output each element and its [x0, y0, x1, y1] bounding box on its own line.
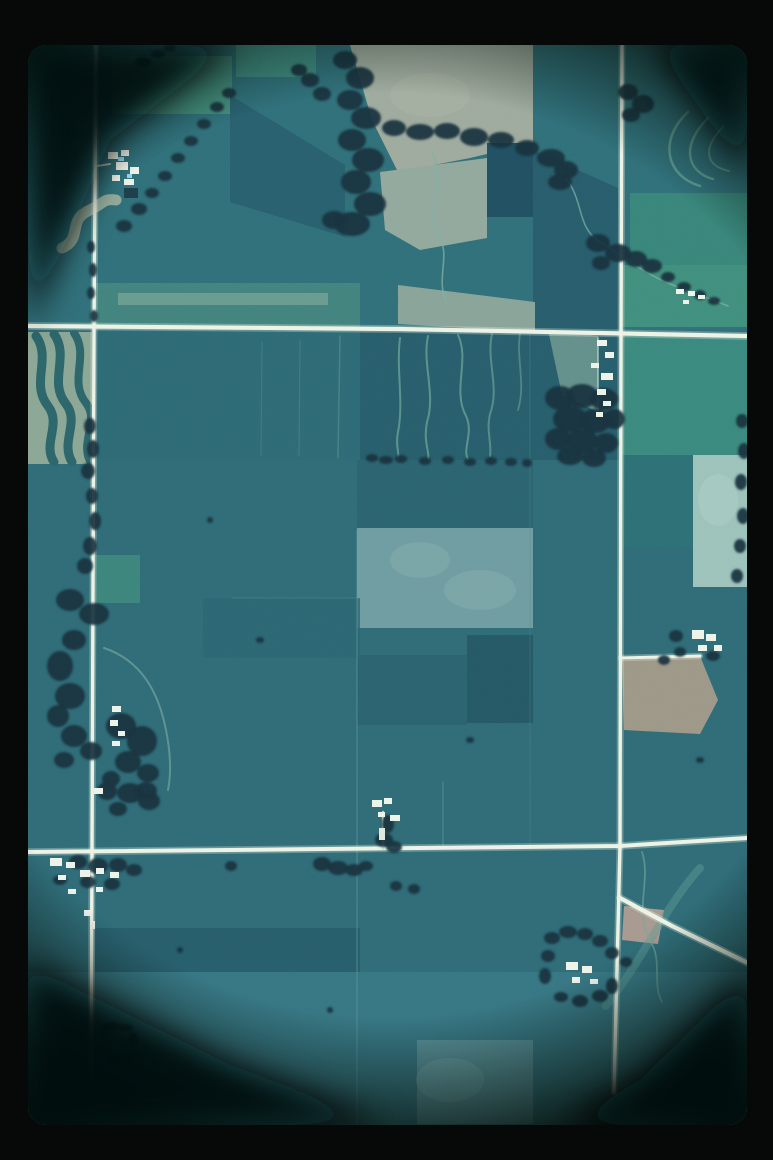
vignette-overlay: [28, 45, 747, 1125]
aerial-photo: [28, 44, 758, 1125]
film-slide-screenshot: [0, 0, 773, 1160]
aerial-photo-canvas: [0, 0, 773, 1160]
